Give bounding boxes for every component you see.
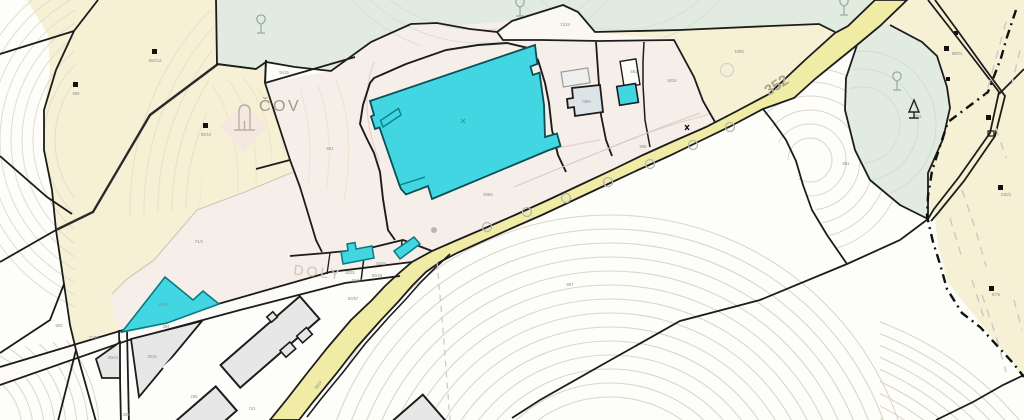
svg-text:508: 508 bbox=[640, 144, 648, 149]
svg-text:7369: 7369 bbox=[581, 99, 591, 104]
svg-text:1319: 1319 bbox=[560, 22, 570, 27]
svg-text:71/16: 71/16 bbox=[89, 335, 100, 340]
svg-text:603: 603 bbox=[56, 323, 64, 328]
svg-text:561: 561 bbox=[631, 69, 639, 74]
svg-text:890/1: 890/1 bbox=[952, 51, 963, 56]
svg-text:400/3: 400/3 bbox=[158, 302, 169, 307]
svg-text:5029: 5029 bbox=[376, 261, 386, 266]
svg-text:206: 206 bbox=[191, 394, 199, 399]
svg-text:383: 383 bbox=[123, 412, 131, 417]
svg-text:50/57: 50/57 bbox=[348, 296, 359, 301]
svg-text:1008: 1008 bbox=[734, 49, 744, 54]
svg-text:5056: 5056 bbox=[483, 192, 493, 197]
svg-text:206/1: 206/1 bbox=[108, 355, 119, 360]
svg-text:236/1: 236/1 bbox=[1001, 192, 1012, 197]
svg-text:741: 741 bbox=[249, 406, 257, 411]
svg-text:559/12: 559/12 bbox=[149, 58, 162, 63]
svg-text:71/1: 71/1 bbox=[195, 239, 204, 244]
svg-text:2015: 2015 bbox=[147, 354, 157, 359]
svg-text:5419: 5419 bbox=[279, 70, 289, 75]
svg-text:561: 561 bbox=[327, 146, 335, 151]
svg-text:5026: 5026 bbox=[667, 78, 677, 83]
svg-text:50/17: 50/17 bbox=[352, 278, 363, 283]
svg-text:891: 891 bbox=[843, 161, 851, 166]
svg-text:90/10: 90/10 bbox=[201, 132, 212, 137]
svg-text:5025: 5025 bbox=[345, 270, 355, 275]
svg-text:ČOV: ČOV bbox=[259, 96, 301, 115]
svg-text:897: 897 bbox=[567, 282, 575, 287]
svg-text:394: 394 bbox=[163, 324, 171, 329]
svg-text:87/5: 87/5 bbox=[992, 292, 1001, 297]
svg-text:559: 559 bbox=[73, 91, 81, 96]
svg-text:50/18: 50/18 bbox=[372, 273, 383, 278]
svg-text:712: 712 bbox=[915, 114, 923, 119]
